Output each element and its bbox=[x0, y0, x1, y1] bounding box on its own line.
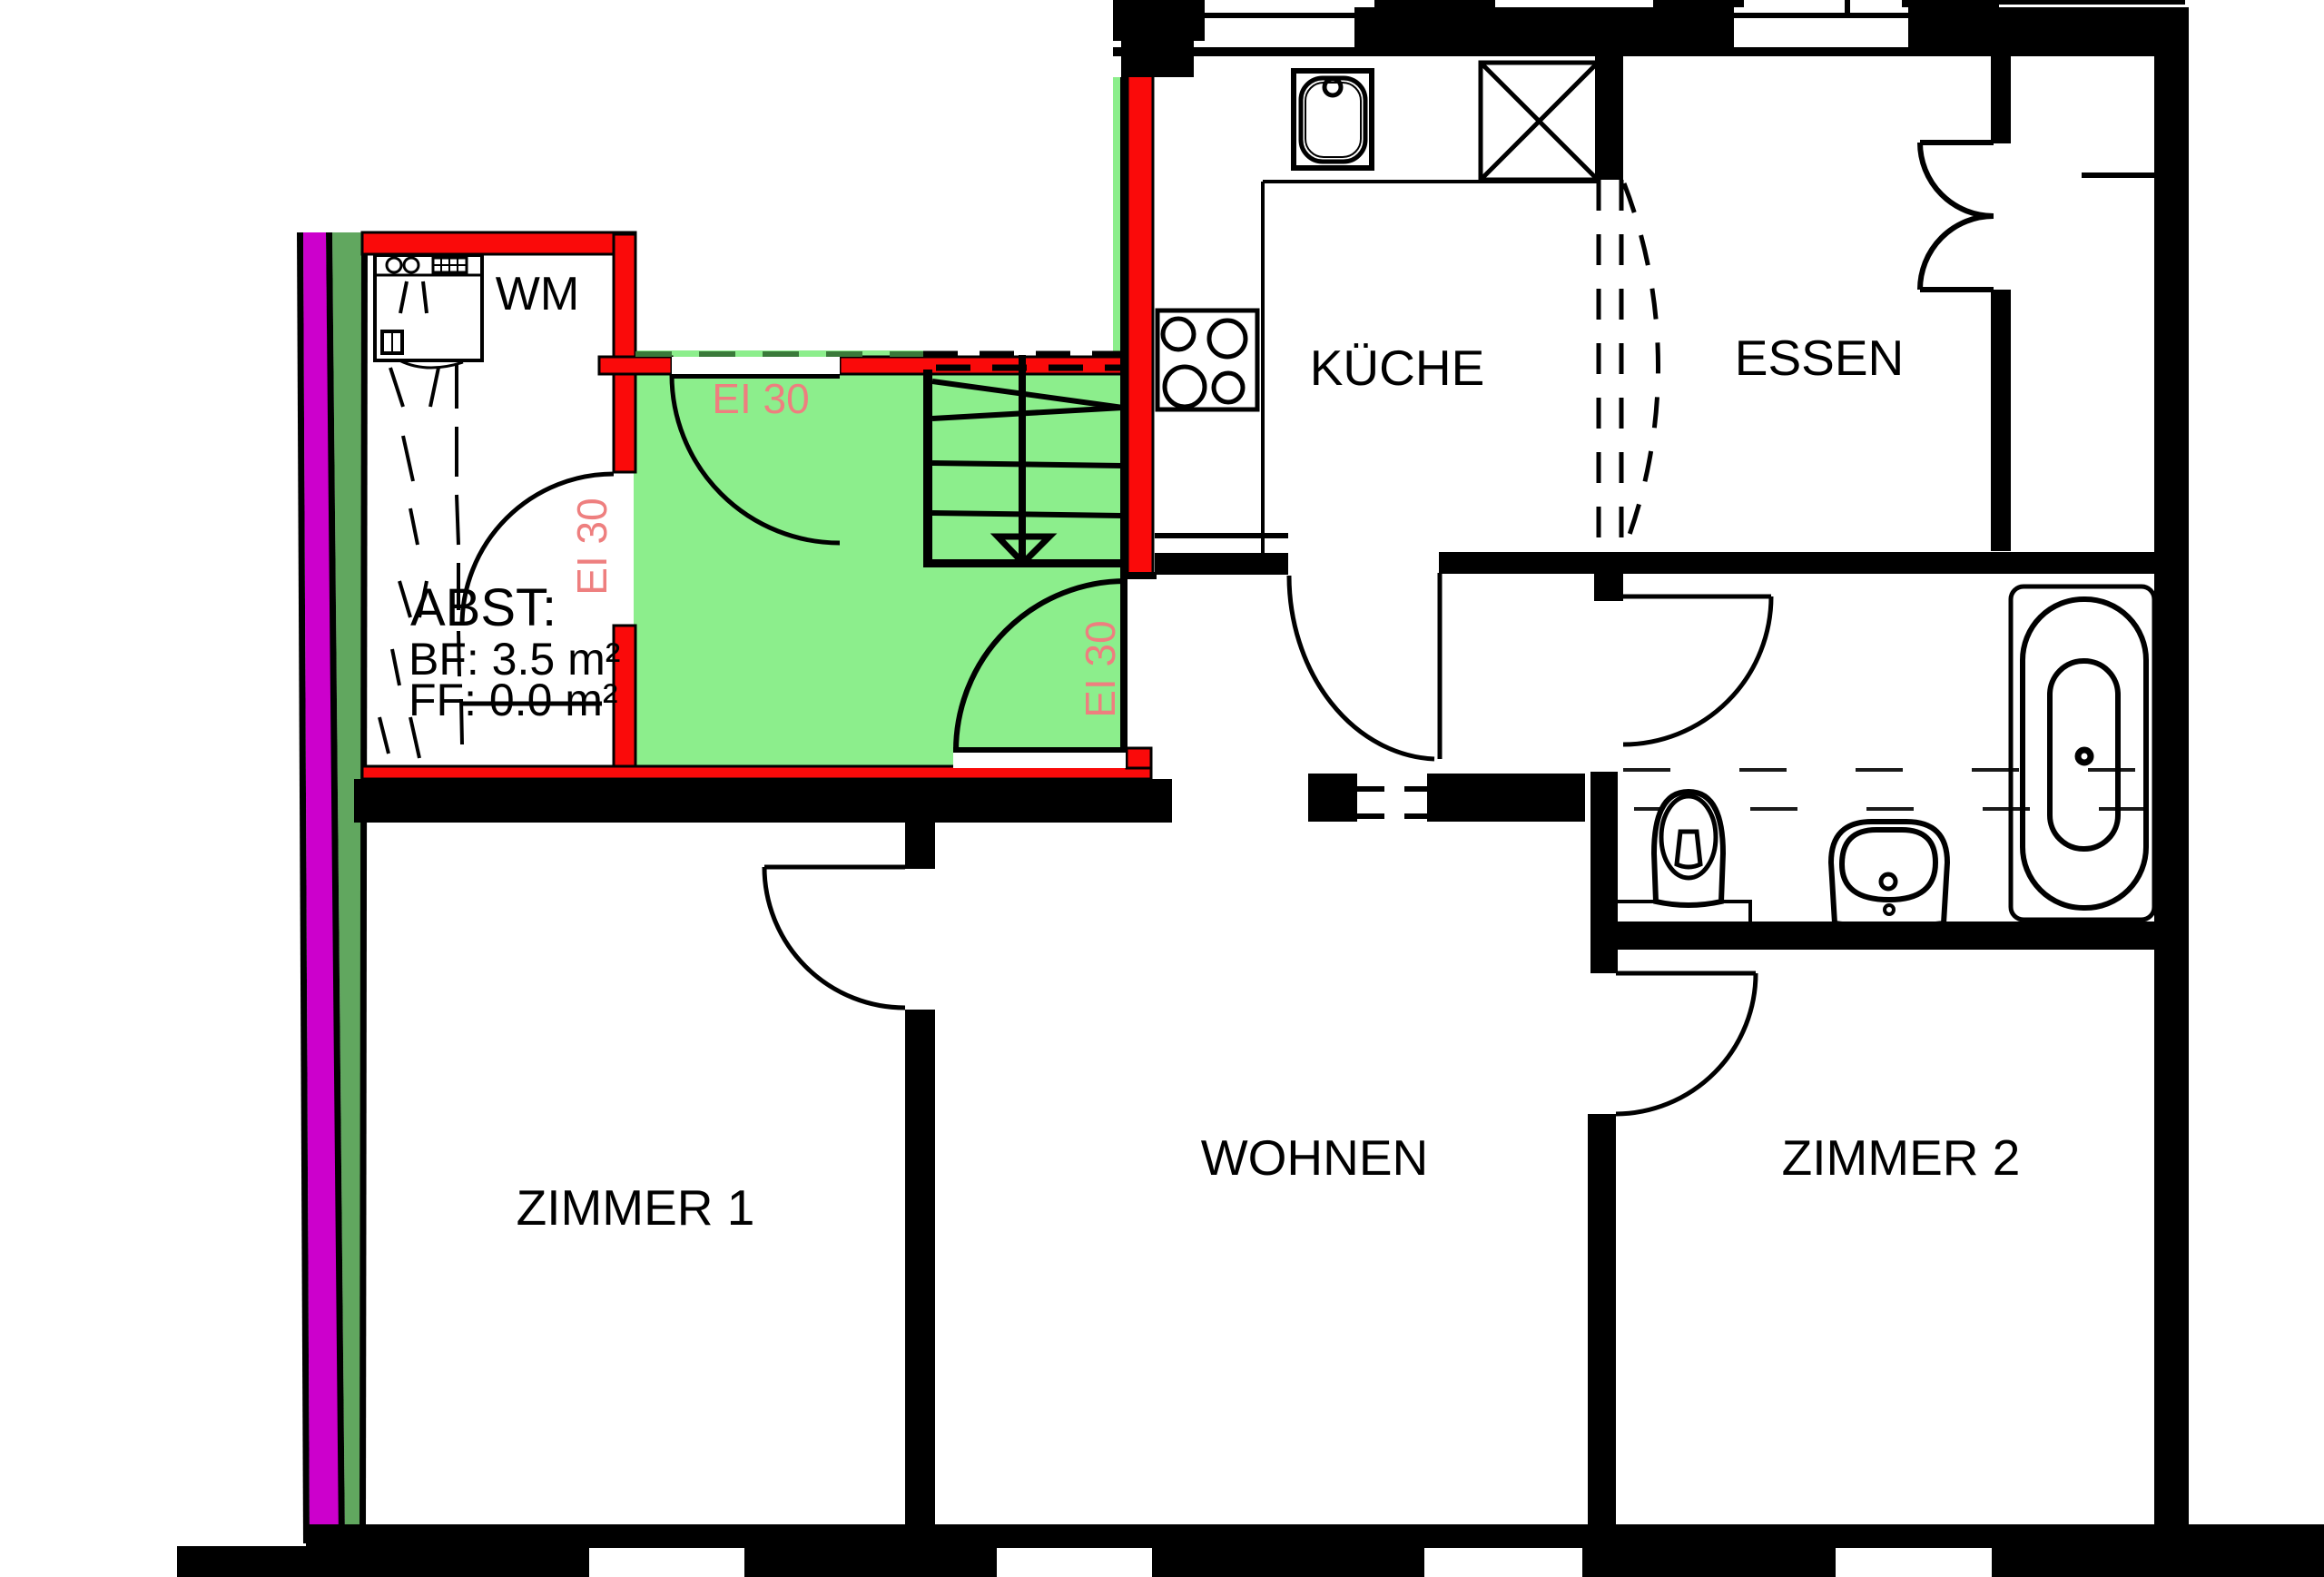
svg-text:WOHNEN: WOHNEN bbox=[1201, 1129, 1429, 1186]
svg-text:WM: WM bbox=[496, 268, 579, 320]
svg-text:EI 30: EI 30 bbox=[712, 375, 809, 422]
svg-text:ZIMMER 1: ZIMMER 1 bbox=[517, 1179, 755, 1236]
svg-text:FF: 0.0 m²: FF: 0.0 m² bbox=[409, 675, 618, 725]
svg-text:EI 30: EI 30 bbox=[568, 498, 615, 595]
svg-text:ABST:: ABST: bbox=[410, 578, 556, 637]
svg-text:EI 30: EI 30 bbox=[1077, 620, 1124, 717]
svg-text:ESSEN: ESSEN bbox=[1735, 330, 1904, 386]
svg-text:KÜCHE: KÜCHE bbox=[1310, 340, 1485, 396]
svg-text:ZIMMER 2: ZIMMER 2 bbox=[1782, 1129, 2021, 1186]
